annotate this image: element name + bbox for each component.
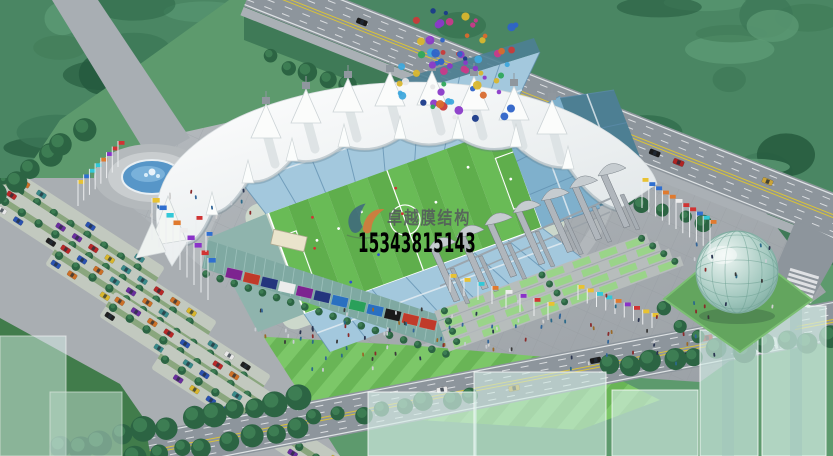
- stadium-aerial-rendering: 卓越膜结构 15343815143: [0, 0, 833, 456]
- watermark-phone-number: 15343815143: [358, 228, 476, 259]
- fountain-spray: [149, 169, 156, 176]
- watermark-brand-text: 卓越膜结构: [387, 208, 471, 229]
- glass-sphere: [696, 231, 778, 313]
